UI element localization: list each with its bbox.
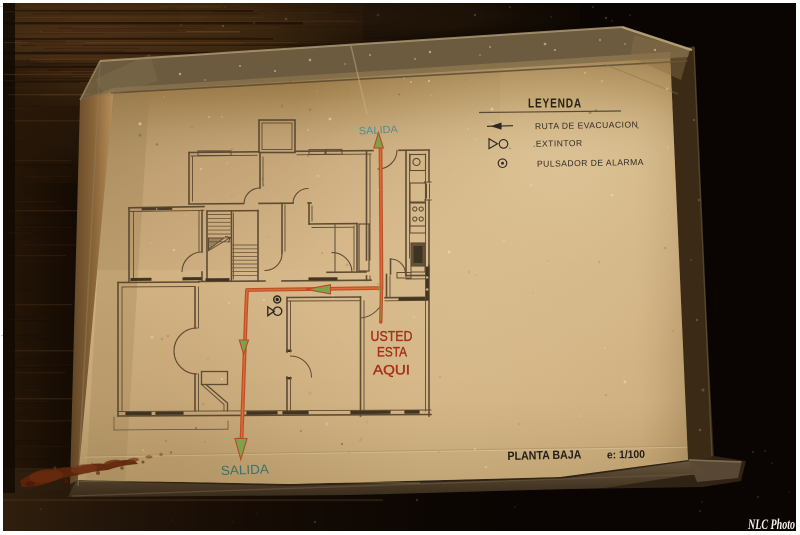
svg-text:ESTA: ESTA xyxy=(377,344,408,360)
svg-text:e: 1/100: e: 1/100 xyxy=(607,449,645,462)
svg-text:NLC Photo: NLC Photo xyxy=(747,517,795,533)
svg-text:.EXTINTOR: .EXTINTOR xyxy=(533,138,583,149)
svg-text:PULSADOR DE ALARMA: PULSADOR DE ALARMA xyxy=(537,157,644,169)
svg-text:SALIDA: SALIDA xyxy=(221,461,270,478)
svg-text:SALIDA: SALIDA xyxy=(359,123,399,137)
svg-text:PLANTA BAJA: PLANTA BAJA xyxy=(507,447,582,463)
svg-text:LEYENDA: LEYENDA xyxy=(528,97,582,111)
svg-text:RUTA DE EVACUACION: RUTA DE EVACUACION xyxy=(535,119,638,131)
svg-text:AQUI: AQUI xyxy=(373,362,410,378)
